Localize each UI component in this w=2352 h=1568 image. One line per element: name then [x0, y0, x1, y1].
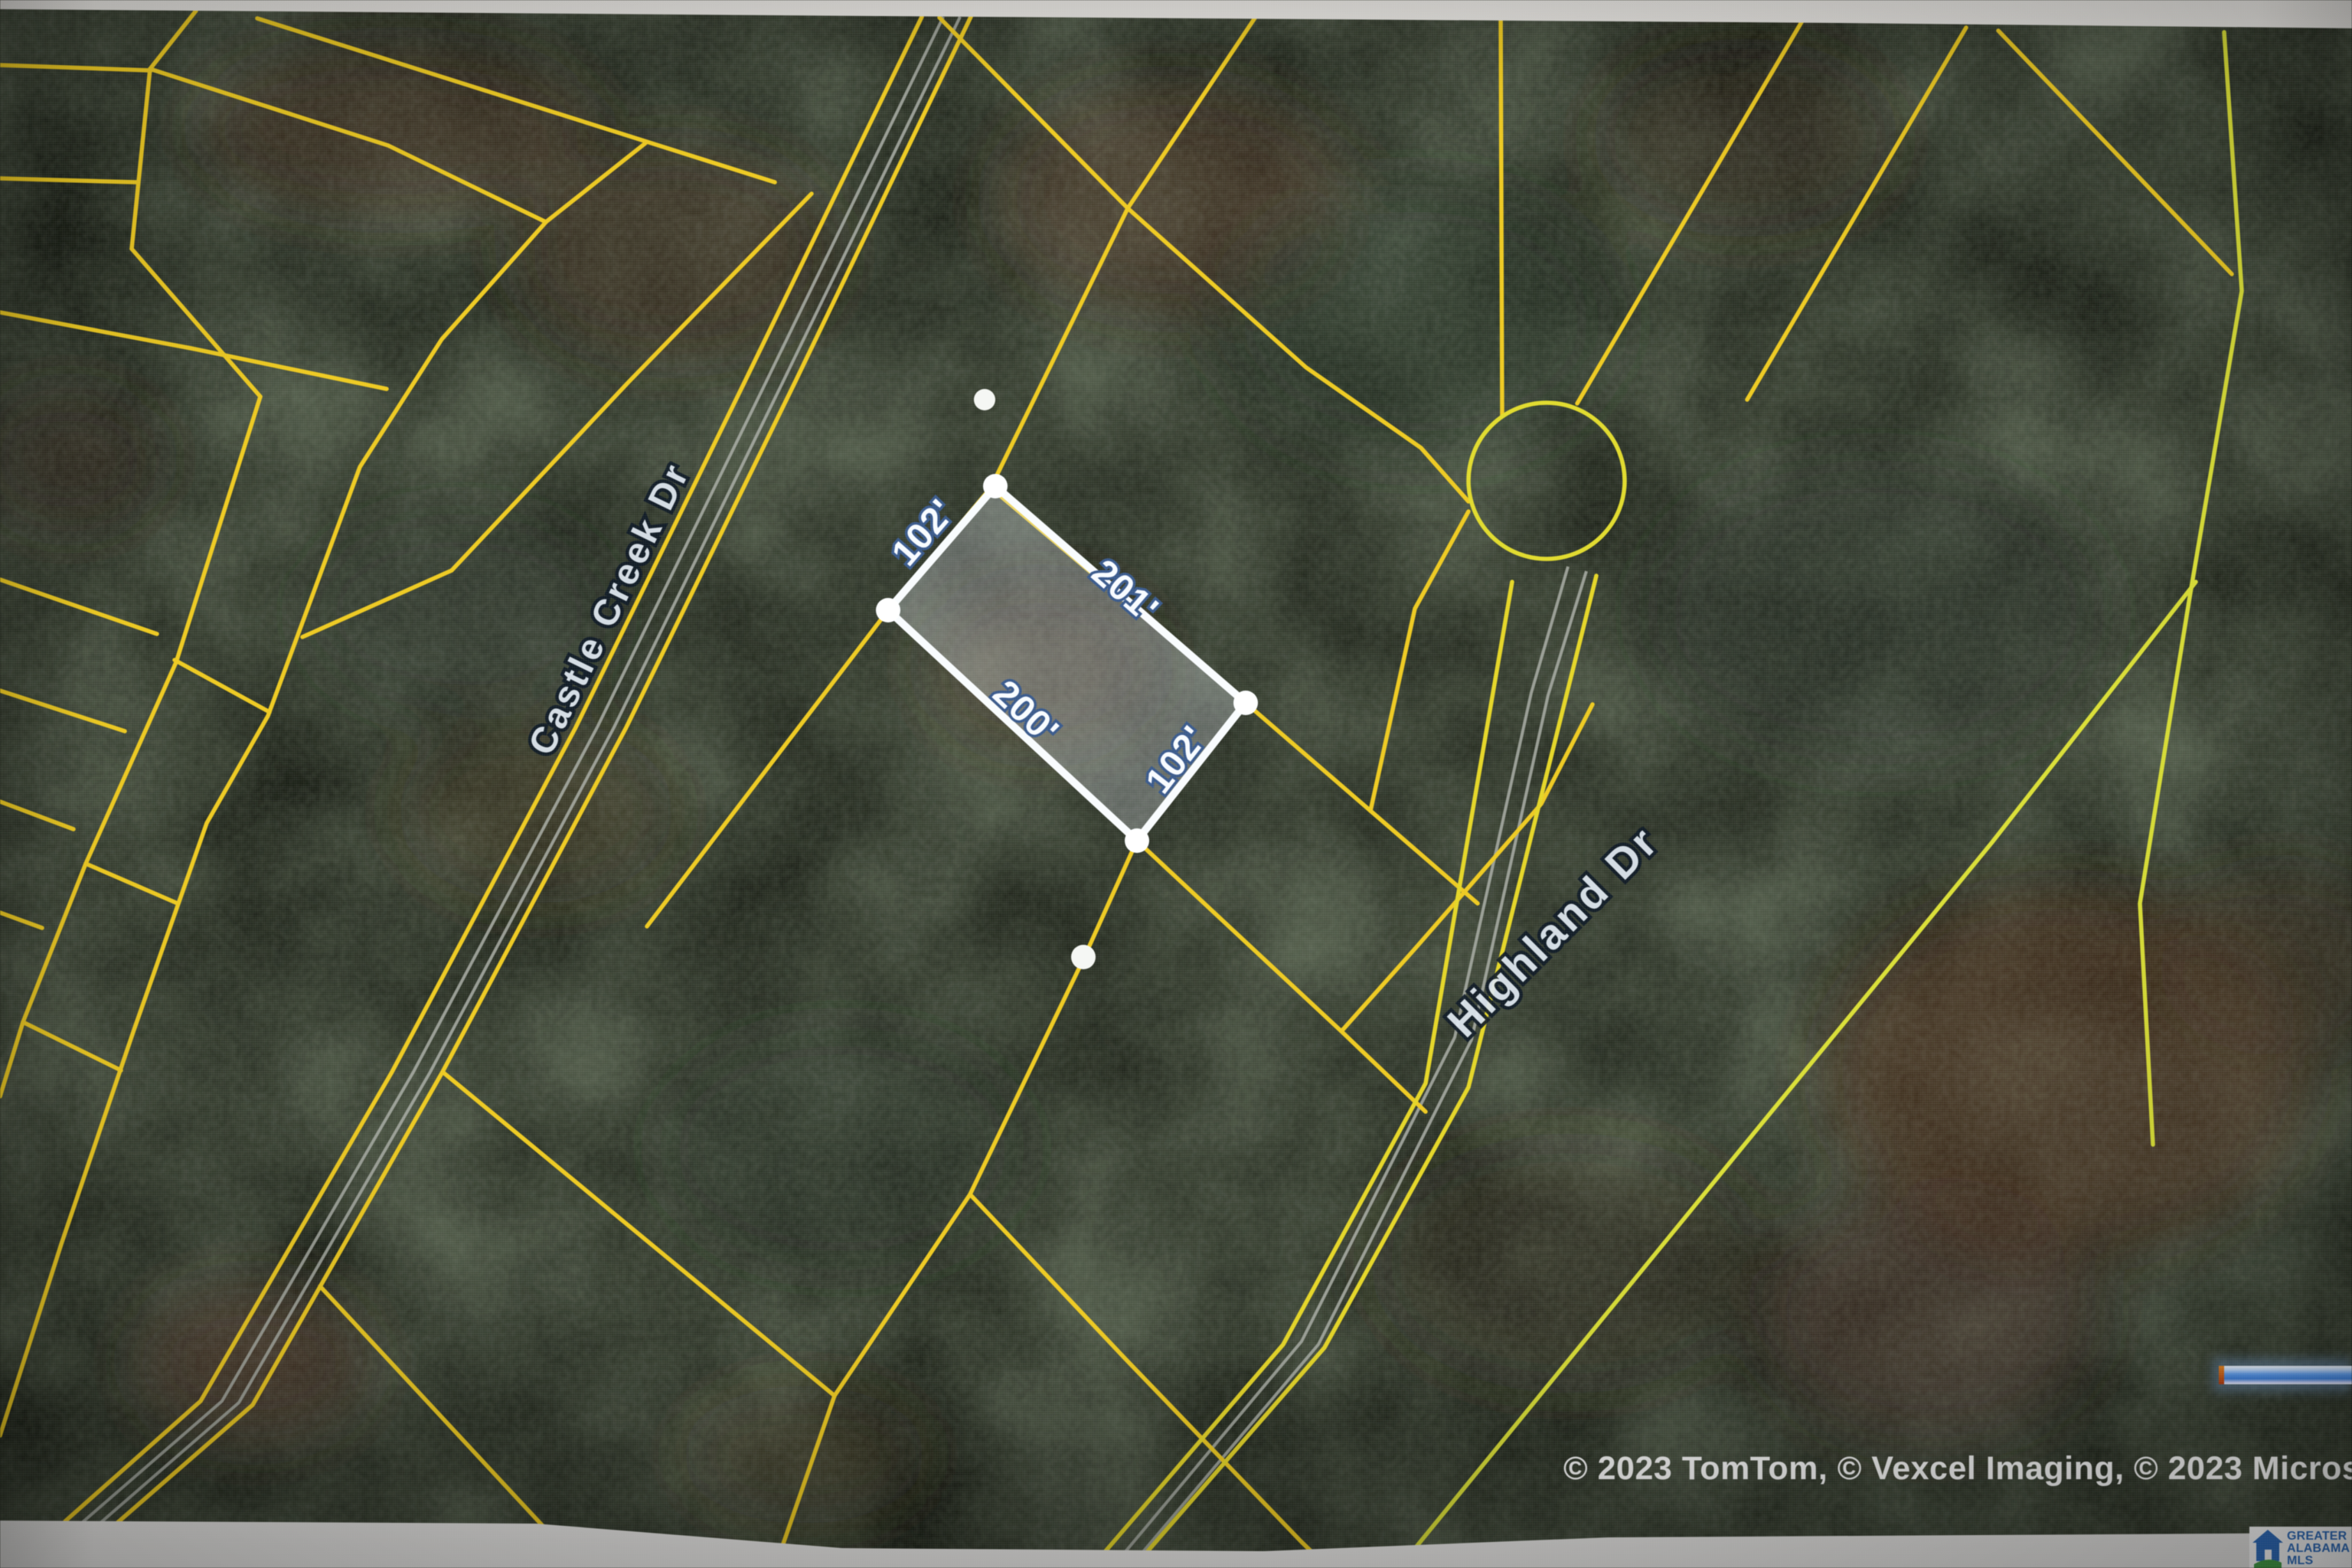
map-photo: 102' 201' 200' 102' Castle Creek Dr High… [0, 0, 2352, 1568]
logo-line2: ALABAMA [2287, 1542, 2350, 1555]
corner-handle[interactable] [1233, 691, 1258, 715]
corner-handle[interactable] [876, 598, 900, 622]
scale-bar [2213, 1358, 2352, 1392]
mls-logo: GREATER ALABAMA MLS [2249, 1527, 2352, 1568]
map-attribution: © 2023 TomTom, © Vexcel Imaging, © 2023 … [1563, 1450, 2352, 1487]
corner-handle[interactable] [1125, 828, 1149, 853]
map-canvas[interactable]: 102' 201' 200' 102' Castle Creek Dr High… [0, 0, 2352, 1568]
corner-handle[interactable] [983, 474, 1008, 498]
logo-line3: MLS [2287, 1554, 2314, 1567]
logo-line1: GREATER [2287, 1530, 2347, 1543]
screen-photo: 102' 201' 200' 102' Castle Creek Dr High… [0, 0, 2352, 1568]
lot-line [1501, 0, 1502, 416]
